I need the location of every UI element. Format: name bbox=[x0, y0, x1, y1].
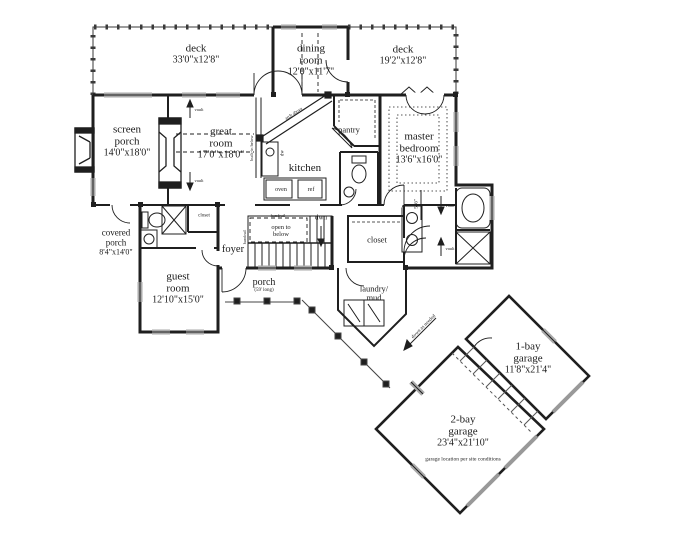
room-label-guest-room: guest room 12'10"x15'0" bbox=[152, 270, 204, 305]
oven-label: oven bbox=[275, 187, 287, 193]
guest-bath-fixtures bbox=[141, 206, 186, 248]
floorplan-drawing bbox=[0, 0, 684, 550]
kitchen-counter bbox=[264, 178, 326, 200]
toilet-tank bbox=[352, 156, 366, 163]
room-dims: 17'0"x18'0" bbox=[198, 150, 245, 161]
room-label-foyer: foyer bbox=[222, 244, 244, 256]
room-dims: 33'0"x12'8" bbox=[173, 55, 220, 66]
kitchen-bar bbox=[257, 92, 332, 144]
toilet-tank bbox=[142, 212, 148, 228]
sink bbox=[344, 187, 354, 197]
room-name: porch bbox=[253, 277, 276, 288]
room-label-deck-right: deck 19'2"x12'8" bbox=[380, 43, 427, 66]
room-name: screen porch bbox=[105, 123, 149, 147]
porch-walkway bbox=[225, 298, 390, 388]
room-label-screen-porch: screen porch 14'0"x18'0" bbox=[104, 123, 151, 158]
room-name: covered porch bbox=[94, 229, 138, 249]
room-dims: 14'0"x18'0" bbox=[104, 148, 151, 159]
dimension-label: 5'-6" bbox=[415, 199, 420, 209]
room-name: deck bbox=[173, 42, 220, 54]
room-label-covered-porch: covered porch 8'4"x14'0" bbox=[94, 229, 138, 258]
room-dims: 12'10"x15'0" bbox=[152, 295, 204, 306]
room-name: 1-bay garage bbox=[510, 340, 546, 364]
room-name: great room bbox=[203, 125, 239, 149]
toilet bbox=[149, 213, 165, 227]
room-label-closet: closet bbox=[367, 235, 387, 244]
handrail-label-top: handrail bbox=[271, 214, 286, 219]
room-name: 2-bay garage bbox=[445, 413, 481, 437]
room-label-dining-room: dining room 12'0"x11'7" bbox=[288, 42, 334, 77]
room-name: kitchen bbox=[289, 162, 321, 174]
room-name: foyer bbox=[222, 244, 244, 256]
toilet bbox=[352, 165, 366, 183]
vault-label-4: vault bbox=[446, 247, 455, 252]
vault-label-1: vault bbox=[195, 108, 204, 113]
room-label-kitchen: kitchen bbox=[289, 162, 321, 174]
room-name: closet bbox=[367, 235, 387, 244]
room-label-two-bay-garage: 2-bay garage 23'4"x21'10" bbox=[437, 413, 489, 448]
room-label-porch: porch (59' long) bbox=[253, 277, 276, 294]
vault-label-2: vault bbox=[195, 179, 204, 184]
room-label-master-bedroom: master bedroom 13'6"x16'0" bbox=[391, 130, 447, 165]
room-dims: 23'4"x21'10" bbox=[437, 438, 489, 449]
powder-room-fixtures bbox=[344, 156, 366, 197]
dwn-label: dwn bbox=[315, 215, 327, 222]
room-name: laundry/ mud bbox=[357, 285, 391, 304]
built-in-label: built-in below bbox=[250, 135, 255, 160]
room-name: guest room bbox=[159, 270, 197, 294]
room-dims: 13'6"x16'0" bbox=[391, 155, 447, 166]
room-dims: 12'0"x11'7" bbox=[288, 67, 334, 78]
room-dims: 8'4"x14'0" bbox=[94, 248, 138, 257]
small-closet-label: closet bbox=[198, 214, 210, 219]
room-name: pantry bbox=[338, 125, 360, 134]
garage-note: garage location per site conditions bbox=[425, 457, 500, 463]
garage-walls bbox=[376, 296, 589, 513]
room-name: master bedroom bbox=[391, 130, 447, 154]
ref-label: ref bbox=[308, 187, 315, 193]
floor-plan: deck 33'0"x12'8" dining room 12'0"x11'7"… bbox=[0, 0, 684, 550]
vault-label-3: vault bbox=[446, 204, 455, 209]
room-dims: 19'2"x12'8" bbox=[380, 56, 427, 67]
room-label-pantry: pantry bbox=[338, 125, 360, 134]
dw-label: dw bbox=[281, 150, 286, 156]
room-name: dining room bbox=[290, 42, 332, 66]
room-label-great-room: great room 17'0"x18'0" bbox=[198, 125, 245, 160]
room-label-one-bay-garage: 1-bay garage 11'8"x21'4" bbox=[505, 340, 551, 375]
room-dims: 11'8"x21'4" bbox=[505, 365, 551, 376]
room-label-laundry-mud: laundry/ mud bbox=[357, 285, 391, 304]
room-dims: (59' long) bbox=[253, 288, 276, 294]
open-to-below-label: open to below bbox=[265, 224, 297, 238]
fireplace-great-room bbox=[159, 118, 181, 188]
room-label-deck-left: deck 33'0"x12'8" bbox=[173, 42, 220, 65]
fireplace-screen-porch bbox=[75, 128, 94, 172]
sink bbox=[144, 234, 154, 244]
open-to-below-text: open to below bbox=[265, 224, 297, 238]
handrail-label-left: handrail bbox=[243, 230, 248, 245]
room-name: deck bbox=[380, 43, 427, 55]
